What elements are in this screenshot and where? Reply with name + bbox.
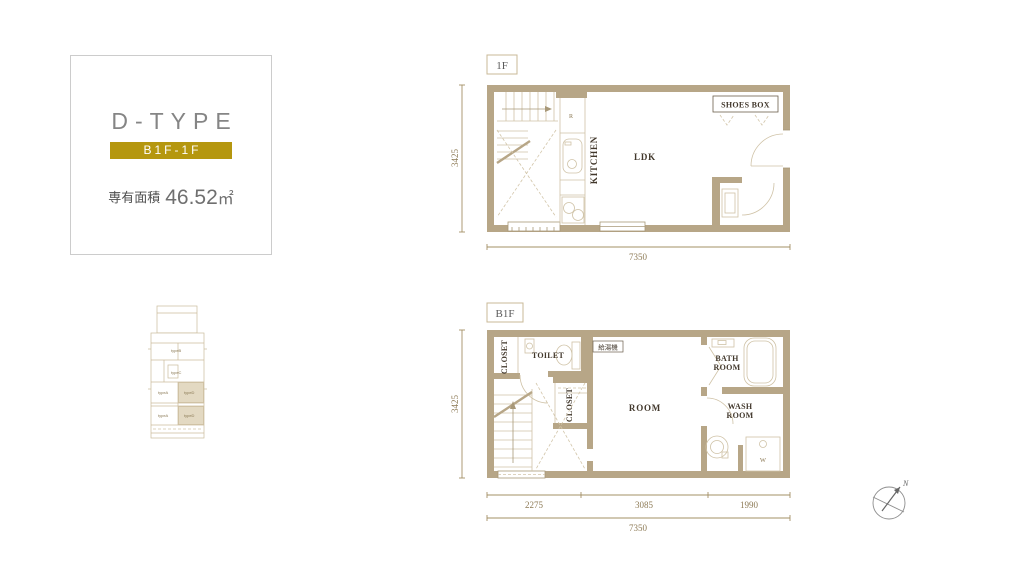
washer-mark: W <box>760 457 767 464</box>
floor-label-1f: 1F <box>487 55 517 74</box>
area-unit: ㎡ <box>218 191 234 208</box>
compass-icon: N <box>860 473 924 537</box>
dim-height-b1f: 3425 <box>450 395 460 414</box>
key-plan-unit-label: typeC <box>171 370 182 375</box>
ldk-label: LDK <box>634 152 656 162</box>
svg-text:1F: 1F <box>496 60 508 72</box>
unit-info-card: D-TYPE B1F-1F 専有面積46.52㎡ <box>70 55 272 255</box>
dim-height-1f: 3425 <box>450 149 460 168</box>
north-label: N <box>902 479 909 488</box>
dim-seg3: 1990 <box>740 500 759 510</box>
floor-range-badge: B1F-1F <box>110 142 232 159</box>
room-label: ROOM <box>629 403 661 413</box>
dim-width-1f: 7350 <box>629 252 648 262</box>
floor-label-b1f: B1F <box>487 303 523 322</box>
entrance-opening <box>783 130 790 168</box>
key-plan-unit-label: typeB <box>171 348 182 353</box>
dim-seg2: 3085 <box>635 500 654 510</box>
unit-area: 専有面積46.52㎡ <box>71 185 271 210</box>
key-plan-unit-label: typeD <box>184 413 195 418</box>
svg-text:B1F: B1F <box>496 308 515 320</box>
dimension-left-b1f: 3425 <box>450 330 465 478</box>
toilet-label: TOILET <box>532 351 565 360</box>
key-plan: typeB typeC typeA typeD typeA typeD <box>140 303 240 448</box>
key-plan-unit-label: typeD <box>184 390 195 395</box>
kitchen-label: KITCHEN <box>589 136 599 184</box>
key-plan-roof <box>157 306 197 333</box>
balcony-window <box>508 222 560 231</box>
floor-plan-b1f: B1F CLOSET <box>450 295 810 550</box>
water-heater-label: 給湯機 <box>598 343 618 352</box>
dimension-bottom-b1f: 2275 3085 1990 7350 <box>487 492 790 533</box>
bath-room-label-1: BATH <box>715 354 739 363</box>
fridge-mark: R <box>569 114 573 120</box>
dim-seg1: 2275 <box>525 500 544 510</box>
wash-room-label-1: WASH <box>728 402 753 411</box>
floor-plan-1f: 1F <box>450 45 810 280</box>
area-value: 46.52 <box>165 186 218 209</box>
key-plan-unit-label: typeA <box>158 390 169 395</box>
water-heater-b1f: 給湯機 <box>593 341 623 352</box>
dimension-bottom-1f: 7350 <box>487 244 790 262</box>
closet-label: CLOSET <box>500 340 509 375</box>
unit-type-title: D-TYPE <box>71 108 271 135</box>
bath-room-label-2: ROOM <box>714 363 741 372</box>
key-plan-unit-label: typeA <box>158 413 169 418</box>
shoes-box-label: SHOES BOX <box>721 101 770 110</box>
area-label: 専有面積 <box>108 190 160 205</box>
dimension-left-1f: 3425 <box>450 85 465 232</box>
dim-total: 7350 <box>629 523 648 533</box>
floorplan-page: D-TYPE B1F-1F 専有面積46.52㎡ <box>0 0 1021 581</box>
